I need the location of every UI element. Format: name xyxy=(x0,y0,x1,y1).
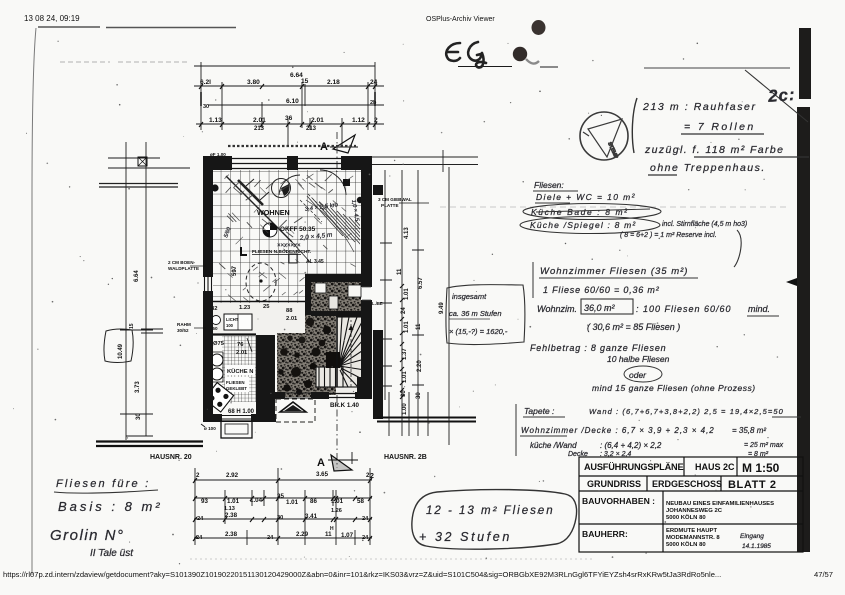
svg-text:1.23: 1.23 xyxy=(239,305,251,311)
svg-text:HAUSNR. 2B: HAUSNR. 2B xyxy=(384,454,427,461)
svg-text:2.01: 2.01 xyxy=(286,316,298,322)
svg-text:LICHT: LICHT xyxy=(226,317,239,322)
svg-text:BAUHERR:: BAUHERR: xyxy=(582,529,628,539)
svg-text:ERDGESCHOSS: ERDGESCHOSS xyxy=(652,479,722,489)
svg-text:11: 11 xyxy=(416,323,422,330)
svg-text:93: 93 xyxy=(201,498,208,505)
svg-text:× (15,-?) = 1620,-: × (15,-?) = 1620,- xyxy=(449,327,508,336)
svg-text:NEUBAU EINES EINFAMILIENHAUSES: NEUBAU EINES EINFAMILIENHAUSES xyxy=(666,501,774,507)
svg-text:RAHM: RAHM xyxy=(177,322,191,327)
svg-text:MODEMANNSTR. 8: MODEMANNSTR. 8 xyxy=(666,535,720,541)
svg-text:ohne Treppenhaus.: ohne Treppenhaus. xyxy=(650,162,766,174)
svg-text:2: 2 xyxy=(366,472,370,479)
svg-text:2.38: 2.38 xyxy=(225,531,238,538)
svg-text:86: 86 xyxy=(310,498,317,505)
svg-text:24: 24 xyxy=(401,307,407,314)
svg-text:+ 32 Stufen: + 32 Stufen xyxy=(419,530,512,544)
svg-text:6.10: 6.10 xyxy=(286,98,299,105)
svg-text:47/57: 47/57 xyxy=(814,570,833,579)
svg-text:Fliesen füre :: Fliesen füre : xyxy=(56,478,150,490)
svg-text:ca. 36 m Stufen: ca. 36 m Stufen xyxy=(449,309,502,318)
svg-text:25: 25 xyxy=(263,304,270,310)
svg-text:213 m : Rauhfaser: 213 m : Rauhfaser xyxy=(642,101,757,113)
svg-text:5000 KÖLN 80: 5000 KÖLN 80 xyxy=(666,541,706,548)
svg-text:1.37: 1.37 xyxy=(402,348,408,360)
svg-text:OSPlus-Archiv Viewer: OSPlus-Archiv Viewer xyxy=(426,16,495,23)
svg-text:JOHANNESWEG 2C: JOHANNESWEG 2C xyxy=(666,508,723,514)
svg-text:24: 24 xyxy=(196,535,203,541)
svg-text:68 H 1.00: 68 H 1.00 xyxy=(228,409,255,415)
svg-text:A: A xyxy=(317,457,325,469)
svg-text:Eingang: Eingang xyxy=(740,533,764,540)
svg-text:15: 15 xyxy=(129,323,135,329)
svg-text:GEKLEBT: GEKLEBT xyxy=(226,386,247,391)
svg-text:: (6,4 + 4,2) × 2,2: : (6,4 + 4,2) × 2,2 xyxy=(600,441,662,450)
svg-text:2.01: 2.01 xyxy=(236,350,248,356)
svg-text:30: 30 xyxy=(136,413,142,420)
svg-text:PLATTE: PLATTE xyxy=(381,203,399,208)
svg-text:11: 11 xyxy=(397,268,403,275)
svg-text:Wohnzim.: Wohnzim. xyxy=(537,304,577,314)
svg-text:AUSFÜHRUNGSPLÄNE: AUSFÜHRUNGSPLÄNE xyxy=(584,462,683,472)
svg-text:FLIESEN N.BODENRICHT.: FLIESEN N.BODENRICHT. xyxy=(252,249,311,255)
svg-text:Wohnzimmer /Decke : 6,7 × 3,9: Wohnzimmer /Decke : 6,7 × 3,9 + 2,3 × 4,… xyxy=(521,426,715,435)
svg-text:https://rl07p.zd.intern/zdavie: https://rl07p.zd.intern/zdaview/getdocum… xyxy=(3,570,721,579)
svg-text:mind 15 ganze Fliesen (ohne: mind 15 ganze Fliesen (ohne Prozess) xyxy=(592,383,756,393)
svg-text:oder: oder xyxy=(629,370,647,380)
svg-text:24: 24 xyxy=(197,516,204,522)
svg-text:2 CM BOEN-: 2 CM BOEN- xyxy=(168,260,196,265)
svg-text:1.00: 1.00 xyxy=(402,403,408,415)
svg-text:( 30,6 m² = 85 Fliesen ): ( 30,6 m² = 85 Fliesen ) xyxy=(587,322,680,332)
svg-text:10 halbe Fliesen: 10 halbe Fliesen xyxy=(607,354,670,364)
svg-text:3.73: 3.73 xyxy=(135,381,141,393)
svg-text:100: 100 xyxy=(226,323,234,328)
svg-text:= 25 m² max: = 25 m² max xyxy=(744,442,784,449)
svg-text:KÜCHE N: KÜCHE N xyxy=(227,368,253,375)
svg-text:2.01: 2.01 xyxy=(311,117,324,124)
svg-text:Wohnzimmer Fliesen (35 m²): Wohnzimmer Fliesen (35 m²) xyxy=(540,266,688,277)
svg-text:Diele + WC = 10 m²: Diele + WC = 10 m² xyxy=(536,192,636,202)
svg-text:1 Fliese 60/60 = 0,36 m²: 1 Fliese 60/60 = 0,36 m² xyxy=(543,285,660,295)
svg-text:2.29: 2.29 xyxy=(296,531,309,538)
svg-text:3.65: 3.65 xyxy=(316,471,329,478)
svg-text:incl. Stirnfläche (4,5 m ho3): incl. Stirnfläche (4,5 m ho3) xyxy=(662,221,747,228)
svg-text:ø 100: ø 100 xyxy=(204,426,216,431)
svg-text:Basis : 8 m²: Basis : 8 m² xyxy=(58,499,163,514)
svg-text:2.20: 2.20 xyxy=(417,360,423,372)
svg-text:36: 36 xyxy=(285,115,293,122)
svg-text:AL 3.45: AL 3.45 xyxy=(306,259,324,265)
svg-text:2.18: 2.18 xyxy=(327,79,340,86)
svg-text:10.49: 10.49 xyxy=(118,343,124,359)
svg-text:Wand : (6,7+6,7+3,8+2,2) 2,5: Wand : (6,7+6,7+3,8+2,2) 2,5 = 19,4×2,5=… xyxy=(589,407,784,416)
svg-text:24: 24 xyxy=(267,535,274,541)
svg-text:30: 30 xyxy=(416,392,422,399)
svg-text:1.01: 1.01 xyxy=(404,288,410,300)
svg-text:12 - 13 m² Fliesen: 12 - 13 m² Fliesen xyxy=(426,505,555,517)
svg-text:30/52: 30/52 xyxy=(177,328,189,333)
svg-text:WOHNEN: WOHNEN xyxy=(257,208,290,217)
svg-text:1.07: 1.07 xyxy=(341,532,354,539)
svg-text:36,0 m²: 36,0 m² xyxy=(584,303,616,313)
svg-text:H: H xyxy=(330,526,334,532)
svg-text:9.49: 9.49 xyxy=(439,302,445,314)
svg-text:( 8 = 6+2 ) = 1 m² Reserve inc: ( 8 = 6+2 ) = 1 m² Reserve incl. xyxy=(620,232,717,239)
svg-text:3.80: 3.80 xyxy=(247,79,260,86)
svg-text:30: 30 xyxy=(203,104,209,110)
svg-text:HAUS 2C: HAUS 2C xyxy=(695,462,735,472)
svg-text:2.92: 2.92 xyxy=(226,472,239,479)
svg-text:3.41: 3.41 xyxy=(305,513,318,520)
svg-text:Fliesen:: Fliesen: xyxy=(534,180,564,190)
svg-text:1.01: 1.01 xyxy=(402,371,408,383)
svg-text:15: 15 xyxy=(301,78,309,85)
svg-text:2b: 2b xyxy=(370,100,377,106)
svg-text:mind.: mind. xyxy=(748,304,770,314)
svg-text:= 7 Rollen: = 7 Rollen xyxy=(684,121,756,133)
svg-text:BAUVORHABEN :: BAUVORHABEN : xyxy=(582,496,655,506)
svg-text:zuzügl. f. 118 m² Farbe: zuzügl. f. 118 m² Farbe xyxy=(644,144,784,156)
svg-text:Fehlbetrag : 8 ganze Flie: Fehlbetrag : 8 ganze Fliesen xyxy=(530,343,666,353)
svg-text:HAUSNR. 20: HAUSNR. 20 xyxy=(150,454,192,461)
svg-text:76: 76 xyxy=(237,342,244,348)
svg-text:Grolin N°: Grolin N° xyxy=(50,527,125,544)
svg-text:1.13: 1.13 xyxy=(209,117,222,124)
svg-text:213: 213 xyxy=(306,126,317,132)
svg-text:11: 11 xyxy=(325,531,332,538)
svg-text:14.1.1985: 14.1.1985 xyxy=(742,543,771,550)
svg-text:BR.K 1.40: BR.K 1.40 xyxy=(330,402,359,409)
svg-text:Tapete :: Tapete : xyxy=(524,406,555,416)
svg-text:4.13: 4.13 xyxy=(404,227,410,239)
svg-text:küche /Wand: küche /Wand xyxy=(530,441,577,450)
svg-text:Küche /Spiegel : 8 m²: Küche /Spiegel : 8 m² xyxy=(530,220,636,230)
svg-text:FLIESEN: FLIESEN xyxy=(226,380,245,385)
svg-text:1.01: 1.01 xyxy=(227,498,240,505)
svg-text:1.01: 1.01 xyxy=(404,321,410,333)
svg-text:6.64: 6.64 xyxy=(134,270,140,282)
svg-text:OKFF 50.35: OKFF 50.35 xyxy=(280,226,316,233)
svg-text:BLATT 2: BLATT 2 xyxy=(728,479,777,491)
svg-text:1.12: 1.12 xyxy=(352,117,365,124)
svg-text:13 08 24, 09:19: 13 08 24, 09:19 xyxy=(24,14,80,23)
svg-text:1.26: 1.26 xyxy=(331,508,342,514)
svg-text:6.57: 6.57 xyxy=(418,277,424,289)
svg-text:××х××х×: ××х××х× xyxy=(277,243,301,249)
svg-text:Ø75: Ø75 xyxy=(213,341,225,347)
svg-text:ERDMUTE HAUPT: ERDMUTE HAUPT xyxy=(666,528,717,534)
svg-text:213: 213 xyxy=(254,126,265,132)
svg-text:3 CM GIEBWAL: 3 CM GIEBWAL xyxy=(378,197,412,202)
svg-text:insgesamt: insgesamt xyxy=(452,292,487,301)
svg-text:2.01: 2.01 xyxy=(253,117,266,124)
svg-text:1.01: 1.01 xyxy=(286,499,299,506)
svg-text:GRUNDRISS: GRUNDRISS xyxy=(587,479,641,489)
svg-text:5000 KÖLN 80: 5000 KÖLN 80 xyxy=(666,514,706,521)
svg-text:M 1:50: M 1:50 xyxy=(742,461,780,475)
svg-text:WALDPLATTE: WALDPLATTE xyxy=(168,266,199,271)
svg-text:II Tale üst: II Tale üst xyxy=(90,548,134,559)
svg-text:2c:: 2c: xyxy=(766,85,796,106)
svg-text:58: 58 xyxy=(357,498,364,505)
svg-text:: 100 Fliesen 60/60: : 100 Fliesen 60/60 xyxy=(636,304,732,314)
svg-text:= 35,8 m²: = 35,8 m² xyxy=(732,426,766,435)
svg-text:88: 88 xyxy=(286,308,293,314)
